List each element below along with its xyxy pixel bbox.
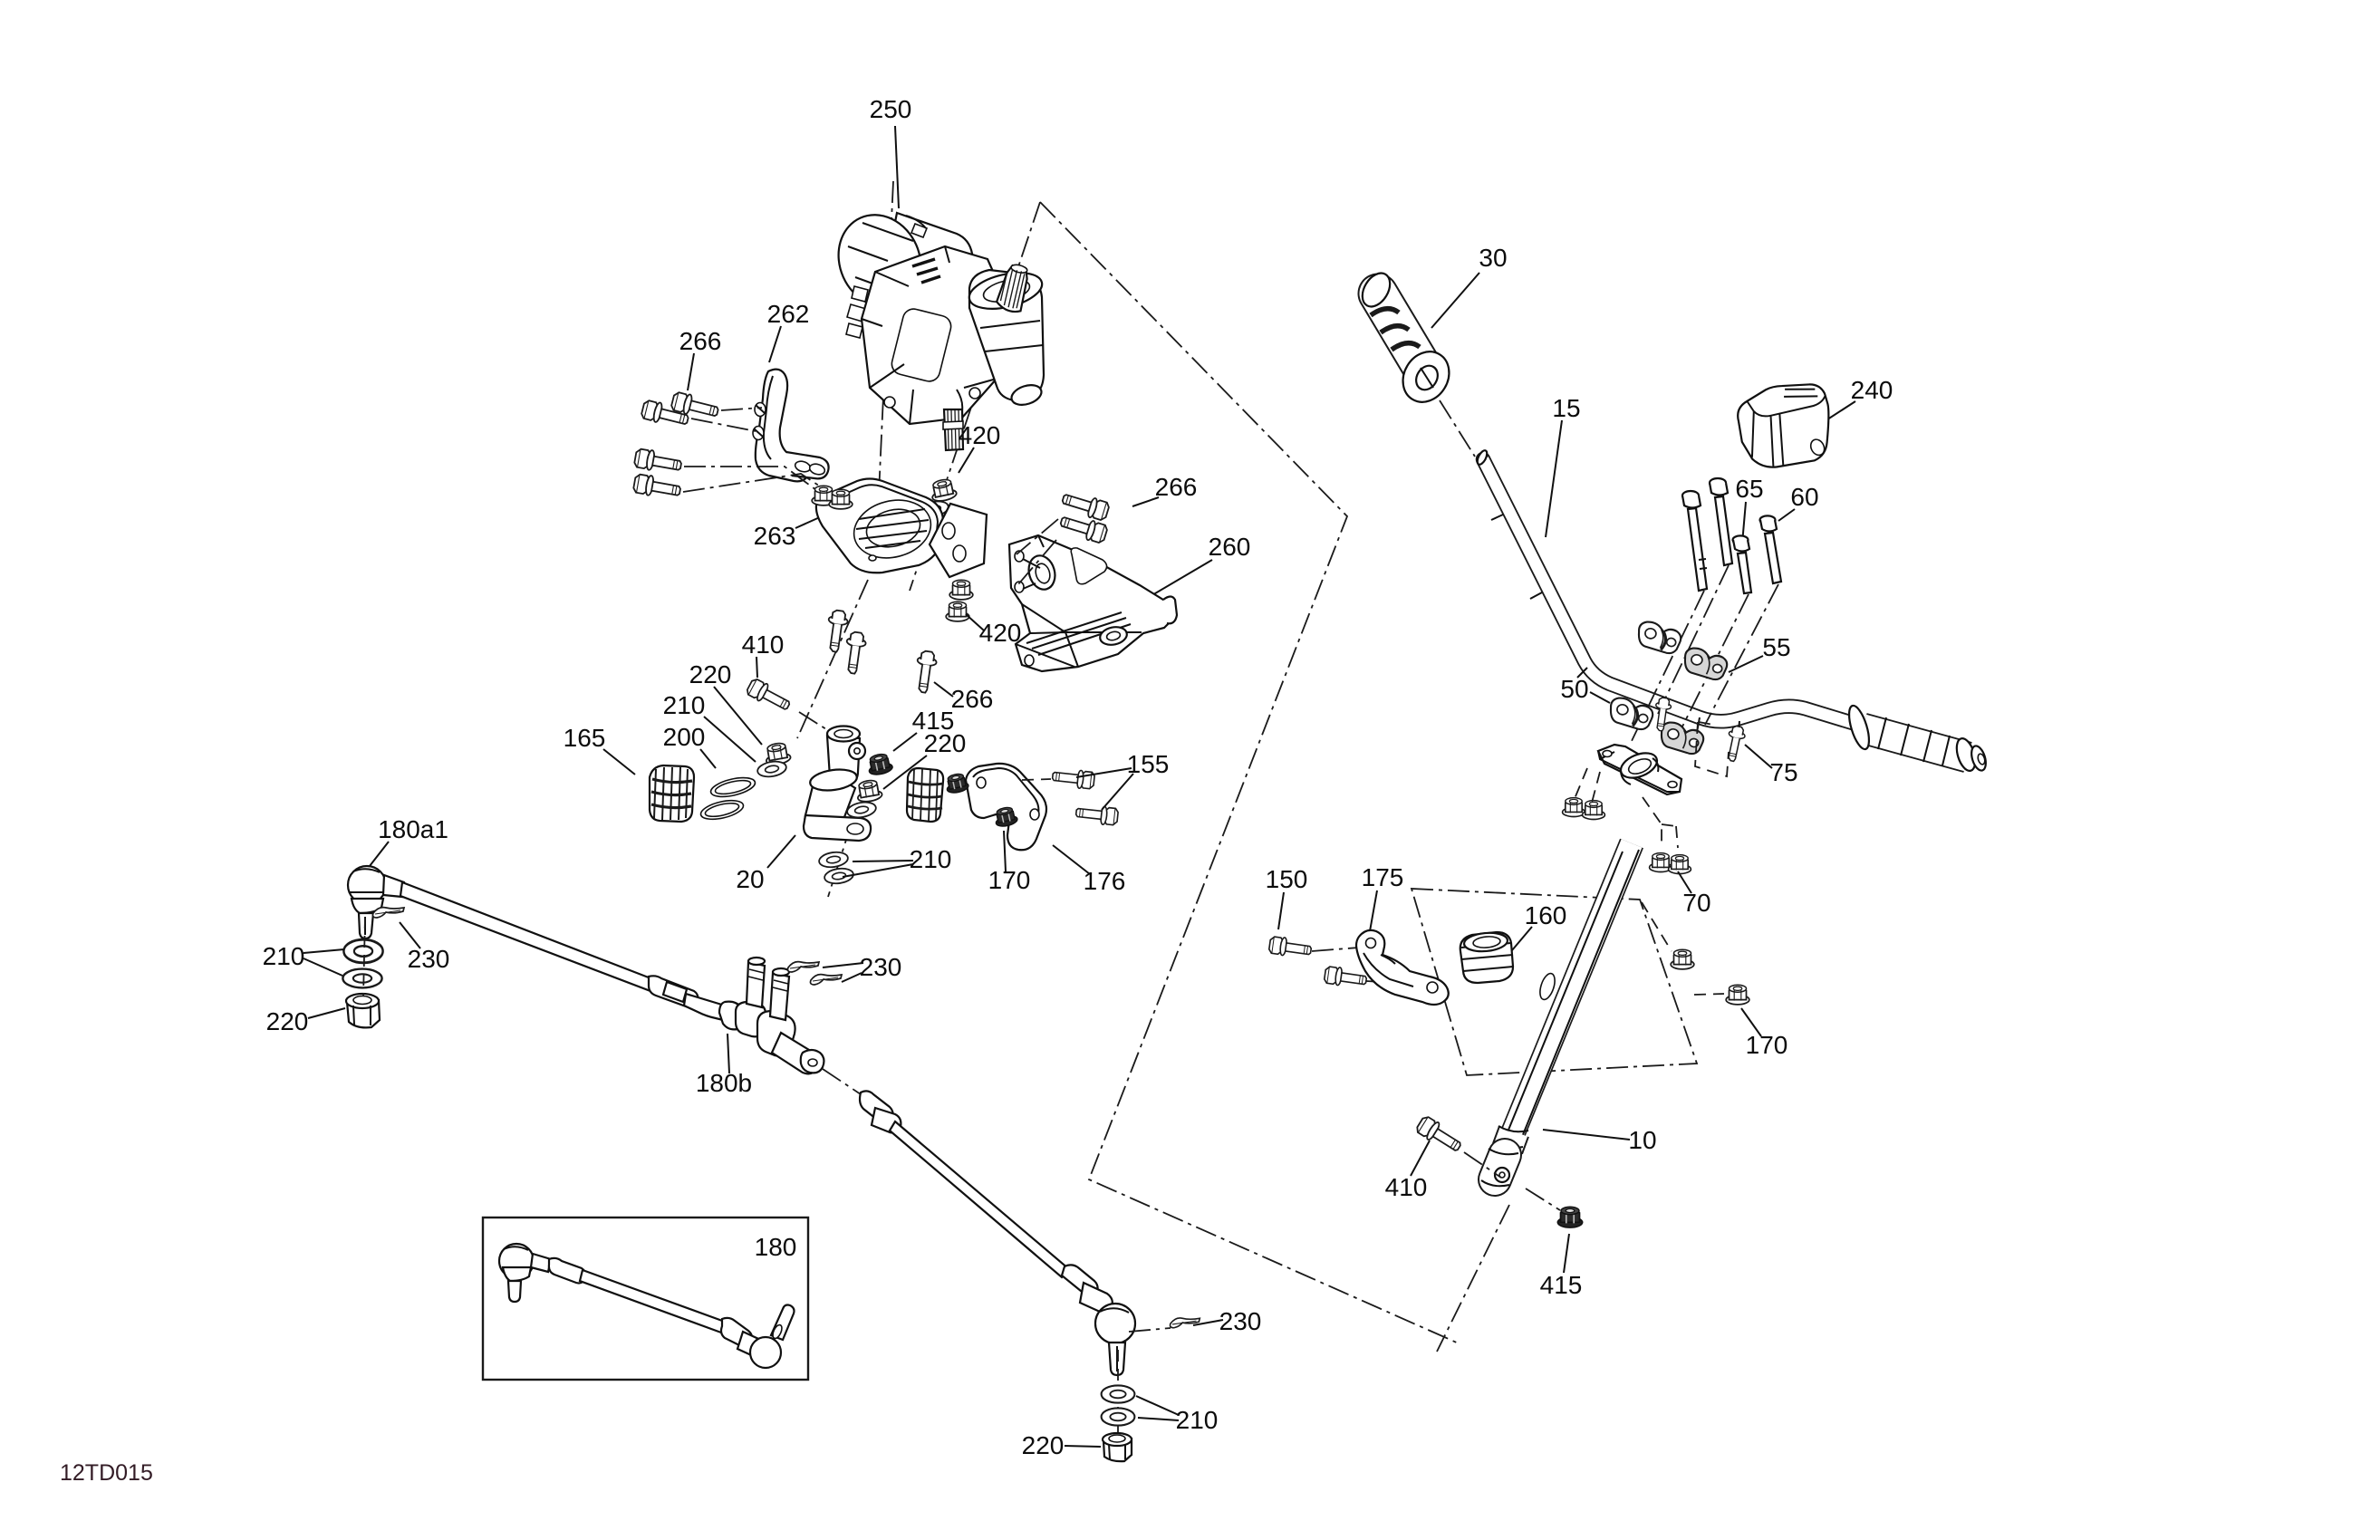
svg-text:210: 210 [663,691,706,719]
svg-text:75: 75 [1769,758,1797,786]
svg-text:12TD015: 12TD015 [60,1460,153,1486]
svg-text:230: 230 [1219,1307,1262,1335]
svg-text:180: 180 [755,1233,797,1261]
svg-text:15: 15 [1552,394,1580,422]
svg-text:230: 230 [860,953,902,981]
svg-text:210: 210 [1176,1406,1219,1434]
svg-text:210: 210 [910,845,952,873]
svg-text:65: 65 [1735,475,1763,503]
svg-text:150: 150 [1266,865,1308,893]
svg-text:70: 70 [1682,889,1710,917]
svg-text:266: 266 [1155,473,1198,501]
svg-text:165: 165 [564,724,606,752]
svg-text:250: 250 [870,95,912,123]
svg-text:170: 170 [988,866,1031,894]
svg-text:10: 10 [1628,1126,1656,1154]
svg-text:20: 20 [736,865,764,893]
svg-text:230: 230 [408,945,450,973]
svg-text:220: 220 [689,660,732,688]
svg-text:55: 55 [1762,633,1790,661]
svg-text:262: 262 [767,300,810,328]
svg-text:420: 420 [979,619,1022,647]
svg-text:210: 210 [263,942,305,970]
svg-text:160: 160 [1525,901,1567,929]
svg-text:200: 200 [663,723,706,751]
svg-text:180b: 180b [696,1069,752,1097]
svg-text:420: 420 [959,421,1001,449]
svg-text:180a1: 180a1 [378,815,448,843]
svg-text:260: 260 [1209,533,1251,561]
svg-text:176: 176 [1084,867,1126,895]
svg-text:175: 175 [1362,863,1404,891]
svg-text:30: 30 [1479,244,1507,272]
svg-text:50: 50 [1560,675,1588,703]
svg-text:240: 240 [1851,376,1893,404]
svg-text:60: 60 [1790,483,1818,511]
svg-text:220: 220 [266,1007,309,1035]
svg-text:410: 410 [742,630,785,659]
svg-text:170: 170 [1746,1031,1788,1059]
svg-text:263: 263 [754,522,796,550]
svg-text:266: 266 [679,327,722,355]
svg-text:266: 266 [951,685,994,713]
svg-text:220: 220 [1022,1431,1065,1459]
svg-text:220: 220 [924,729,967,757]
svg-text:415: 415 [1540,1271,1583,1299]
svg-text:410: 410 [1385,1173,1428,1201]
